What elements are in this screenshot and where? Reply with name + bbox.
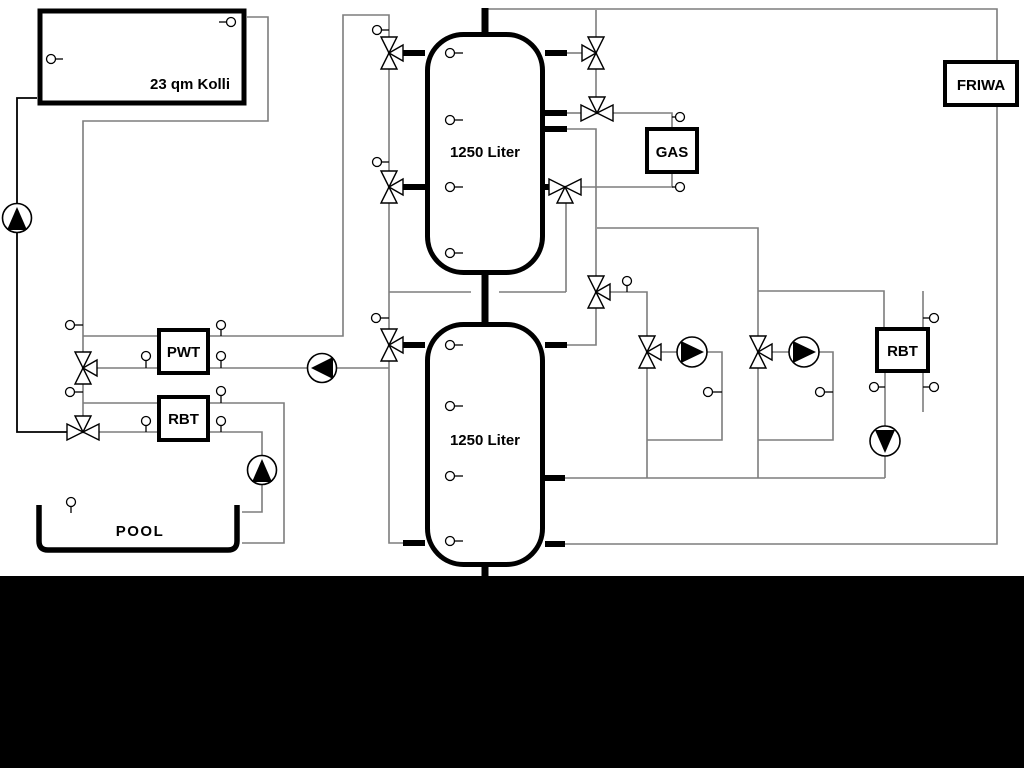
three-way-valve-icon (381, 329, 403, 361)
temperature-sensor-icon (704, 388, 723, 397)
pipe-solar-return (17, 98, 67, 432)
buffer-tank-2: 1250 Liter (428, 325, 543, 565)
temperature-sensor-icon (66, 321, 84, 330)
temperature-sensor-icon (142, 352, 151, 369)
schematic-canvas: 23 qm Kolli 1250 Liter 1250 Liter PWT RB… (0, 0, 1024, 768)
pipe-friwa (485, 9, 997, 544)
temperature-sensor-icon (372, 314, 390, 323)
buffer-tank-1: 1250 Liter (428, 35, 543, 273)
temperature-sensor-icon (217, 417, 226, 433)
rbt-left-label: RBT (168, 411, 199, 428)
bottom-black-band (0, 576, 1024, 768)
solar-collector-box: 23 qm Kolli (40, 11, 244, 103)
three-way-valve-icon (582, 37, 604, 69)
temperature-sensor-icon (672, 113, 685, 122)
three-way-valve-icon (639, 336, 661, 368)
three-way-valve-icon (67, 416, 99, 440)
rbt-right-label: RBT (887, 343, 918, 360)
temperature-sensor-icon (373, 158, 390, 167)
pwt-heat-exchanger-box: PWT (159, 330, 208, 373)
pool-label: POOL (116, 523, 165, 540)
temperature-sensor-icon (67, 498, 76, 514)
temperature-sensor-icon (816, 388, 834, 397)
temperature-sensor-icon (923, 383, 939, 392)
temperature-sensor-icon (870, 383, 886, 392)
heating-circuit-2-pump-icon (789, 337, 819, 367)
gas-label: GAS (656, 144, 689, 161)
friwa-label: FRIWA (957, 77, 1005, 94)
tank2-label: 1250 Liter (450, 432, 520, 449)
temperature-sensor-icon (142, 417, 151, 433)
temperature-sensor-icon (66, 388, 84, 397)
three-way-valve-icon (549, 179, 581, 203)
pool-basin: POOL (39, 505, 237, 550)
temperature-sensor-icon (623, 277, 632, 293)
pipe-rbt-pool-supply (99, 432, 262, 512)
three-way-valve-icon (581, 97, 613, 121)
temperature-sensor-icon (672, 183, 685, 192)
heating-schematic-diagram: 23 qm Kolli 1250 Liter 1250 Liter PWT RB… (0, 0, 1024, 768)
temperature-sensor-icon (373, 26, 390, 35)
solar-pump-icon (3, 204, 32, 233)
pwt-pump-icon (308, 354, 337, 383)
rbt-pump-icon (870, 426, 900, 456)
pool-pump-icon (248, 456, 277, 485)
gas-boiler-box: GAS (647, 129, 697, 172)
temperature-sensor-icon (923, 314, 939, 323)
pwt-label: PWT (167, 344, 200, 361)
three-way-valve-icon (750, 336, 772, 368)
temperature-sensor-icon (217, 321, 226, 337)
collector-label: 23 qm Kolli (150, 76, 230, 93)
three-way-valve-icon (381, 171, 403, 203)
three-way-valve-icon (75, 352, 97, 384)
temperature-sensor-icon (217, 387, 226, 404)
rbt-heat-exchanger-right-box: RBT (877, 329, 928, 371)
tank1-label: 1250 Liter (450, 144, 520, 161)
heating-circuit-1-pump-icon (677, 337, 707, 367)
rbt-heat-exchanger-left-box: RBT (159, 397, 208, 440)
temperature-sensor-icon (217, 352, 226, 369)
three-way-valve-icon (588, 276, 610, 308)
three-way-valve-icon (381, 37, 403, 69)
friwa-station-box: FRIWA (945, 62, 1017, 105)
